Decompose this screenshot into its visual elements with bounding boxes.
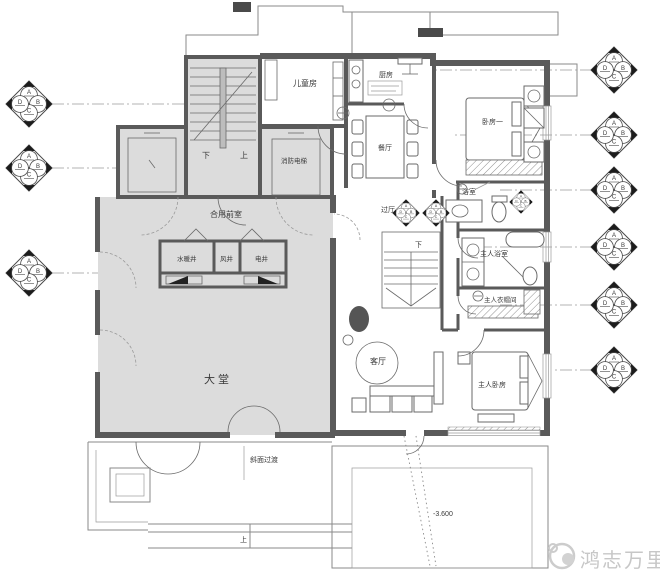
kitchen-note-box — [368, 81, 402, 95]
dining-room: 餐厅 — [352, 116, 418, 178]
public-stair: 下 上 — [186, 57, 260, 197]
floor-plan-drawing: A B C D 斜面过渡 — [0, 0, 660, 584]
unit-stair: 下 — [382, 232, 440, 308]
floor-plan-page: A B C D 斜面过渡 — [0, 0, 660, 584]
kitchen: 厨房 — [349, 58, 422, 102]
master-bathroom: 主人浴室 — [462, 232, 544, 286]
living-room: 客厅 — [343, 306, 443, 412]
elevator-left — [118, 127, 186, 197]
master-bathroom-label: 主人浴室 — [480, 249, 508, 258]
stair-up-label: 上 — [240, 151, 248, 160]
living-room-label: 客厅 — [370, 356, 386, 366]
floor-level-label: -3.600 — [433, 511, 453, 518]
kitchen-label: 厨房 — [379, 70, 393, 79]
terrace-right: -3.600 — [332, 436, 548, 568]
watermark-brand: 鸿志万里 — [580, 549, 660, 572]
bathroom-label: 浴室 — [462, 187, 476, 196]
master-bedroom-label: 主人卧房 — [478, 380, 506, 389]
unit-stair-down-label: 下 — [415, 241, 422, 249]
plumbing-shaft-label: 水暖井 — [177, 254, 197, 263]
watermark: 鸿志万里 — [549, 544, 660, 572]
lounge-chair — [349, 306, 369, 332]
bedroom-one: 卧房一 — [466, 86, 544, 175]
roof-element — [233, 2, 251, 12]
shared-front-room-label: 合用前室 — [210, 209, 242, 219]
slope-transition-label: 斜面过渡 — [250, 455, 278, 464]
master-closet: 主人衣帽间 — [468, 290, 540, 318]
bedroom-one-label: 卧房一 — [482, 117, 503, 126]
stair-down-label: 下 — [202, 151, 210, 160]
dining-room-label: 餐厅 — [378, 143, 392, 152]
fire-elevator-label: 消防电梯 — [281, 156, 308, 165]
lobby-label: 大堂 — [204, 372, 232, 386]
childrens-room-label: 儿童房 — [293, 78, 317, 88]
bathroom: 浴室 — [446, 182, 507, 222]
electrical-shaft-label: 电井 — [255, 254, 269, 263]
roof-element-2 — [418, 28, 443, 37]
public-zone: 大堂 合用前室 — [98, 197, 333, 435]
air-shaft-label: 风井 — [220, 254, 234, 263]
master-bedroom: 主人卧房 — [458, 352, 542, 422]
lobby-floor — [98, 197, 333, 435]
terrace-up-label: 上 — [240, 535, 247, 544]
childrens-room: 儿童房 — [265, 60, 343, 120]
master-closet-label: 主人衣帽间 — [484, 295, 517, 304]
fire-elevator: 消防电梯 — [260, 127, 332, 197]
terrace-left: 斜面过渡 上 — [88, 442, 352, 548]
